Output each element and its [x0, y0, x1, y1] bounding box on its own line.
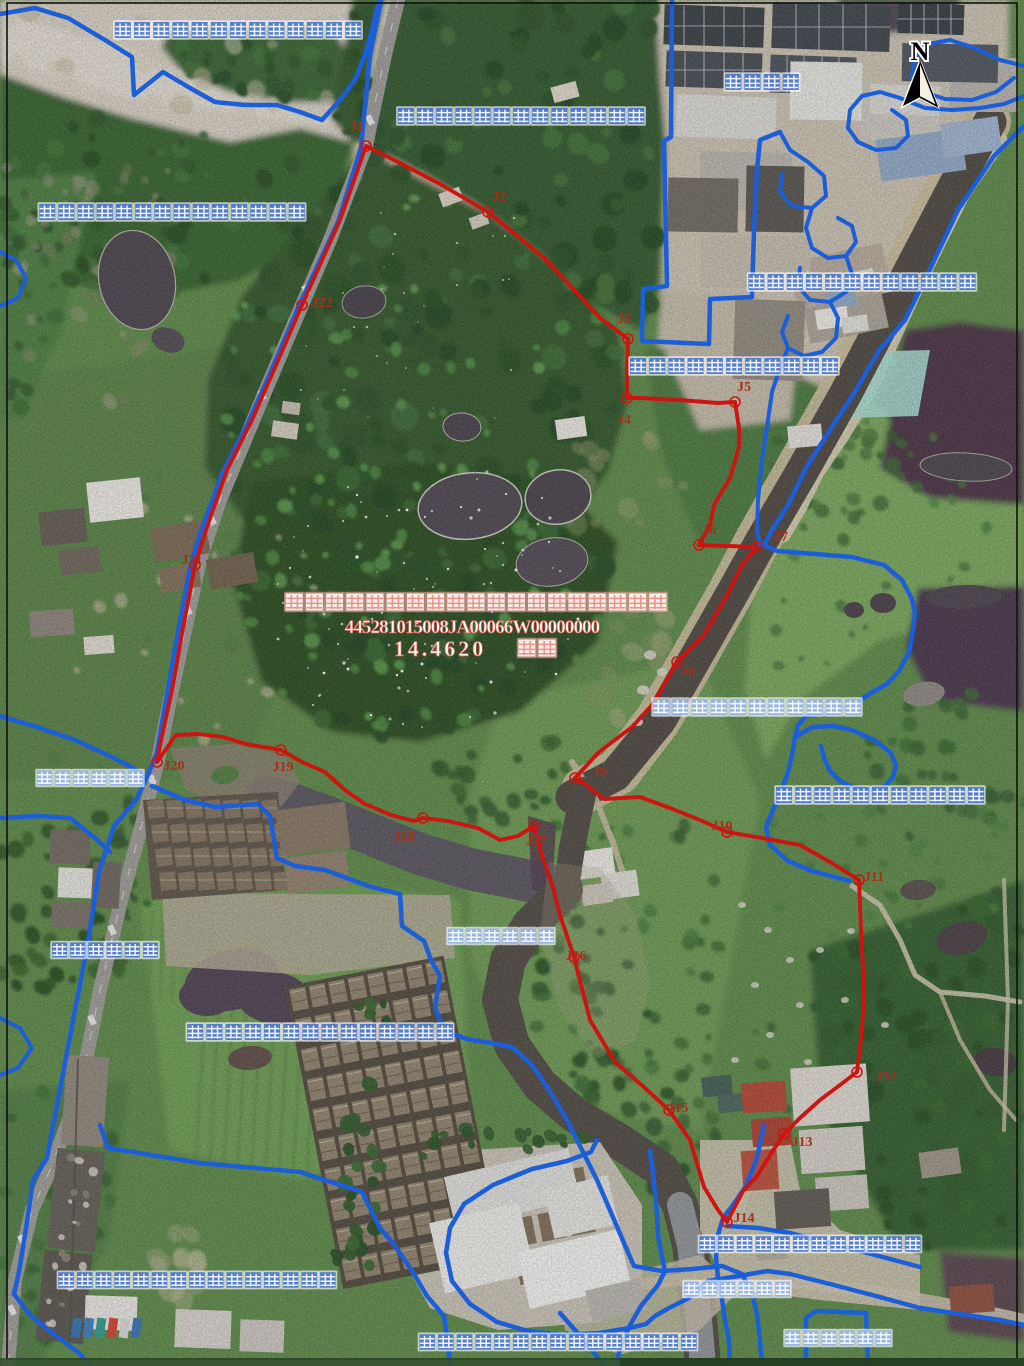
svg-text:J18: J18	[394, 830, 415, 845]
svg-text:J21: J21	[182, 553, 203, 568]
svg-text:J1: J1	[350, 120, 364, 135]
svg-text:J11: J11	[864, 870, 884, 885]
svg-text:J14: J14	[734, 1211, 755, 1226]
svg-text:J20: J20	[164, 759, 185, 774]
svg-text:J7: J7	[774, 530, 788, 545]
svg-text:J9: J9	[593, 765, 607, 780]
svg-text:J13: J13	[792, 1135, 813, 1150]
svg-text:J6: J6	[702, 523, 716, 538]
svg-text:J2: J2	[492, 190, 506, 205]
svg-text:J15: J15	[668, 1101, 689, 1116]
svg-text:J8: J8	[681, 665, 695, 680]
svg-text:J5: J5	[737, 380, 751, 395]
svg-text:445281015008JA00066W00000000: 445281015008JA00066W00000000	[345, 617, 600, 638]
svg-text:J19: J19	[273, 760, 294, 775]
svg-text:14.4620: 14.4620	[394, 636, 487, 661]
svg-text:J16: J16	[566, 949, 587, 964]
svg-text:J3: J3	[617, 312, 631, 327]
svg-text:J10: J10	[712, 819, 733, 834]
svg-text:J4: J4	[617, 413, 631, 428]
svg-text:J22: J22	[312, 296, 333, 311]
svg-text:N: N	[911, 37, 930, 66]
svg-text:J12: J12	[876, 1069, 897, 1084]
svg-text:J17: J17	[526, 834, 547, 849]
